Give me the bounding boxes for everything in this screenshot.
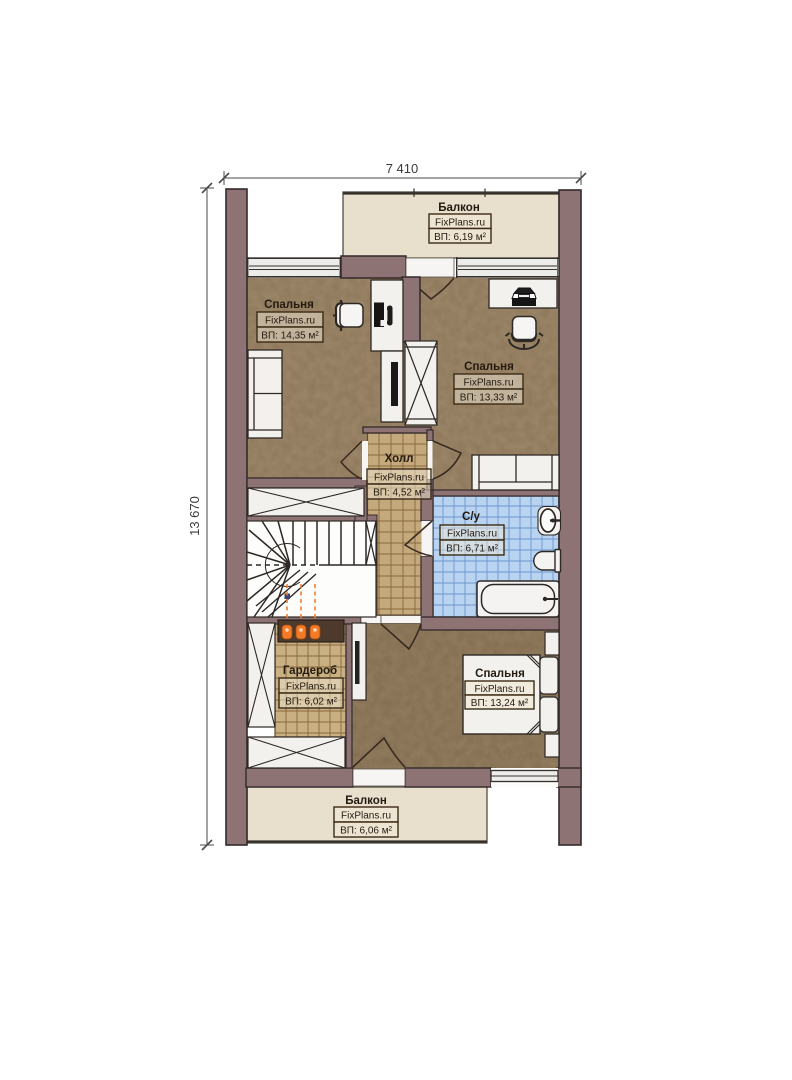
svg-text:ВП: 14,35 м²: ВП: 14,35 м² (261, 331, 319, 342)
svg-text:ВП: 6,19 м²: ВП: 6,19 м² (434, 232, 487, 243)
svg-text:Балкон: Балкон (438, 202, 480, 214)
svg-text:ВП: 13,24 м²: ВП: 13,24 м² (471, 698, 529, 709)
svg-text:FixPlans.ru: FixPlans.ru (447, 529, 497, 540)
svg-text:7 410: 7 410 (386, 161, 419, 176)
svg-text:С/у: С/у (462, 511, 481, 523)
svg-text:Гардероб: Гардероб (283, 665, 337, 677)
svg-text:FixPlans.ru: FixPlans.ru (286, 682, 336, 693)
svg-text:FixPlans.ru: FixPlans.ru (265, 316, 315, 327)
svg-text:ВП: 6,06 м²: ВП: 6,06 м² (340, 826, 393, 837)
svg-text:FixPlans.ru: FixPlans.ru (463, 378, 513, 389)
svg-text:FixPlans.ru: FixPlans.ru (374, 473, 424, 484)
svg-text:Спальня: Спальня (464, 361, 514, 373)
svg-text:FixPlans.ru: FixPlans.ru (341, 811, 391, 822)
svg-text:Балкон: Балкон (345, 795, 387, 807)
svg-text:ВП: 6,02 м²: ВП: 6,02 м² (285, 697, 338, 708)
svg-text:FixPlans.ru: FixPlans.ru (474, 684, 524, 695)
svg-text:FixPlans.ru: FixPlans.ru (435, 218, 485, 229)
svg-text:13 670: 13 670 (187, 496, 202, 536)
svg-text:ВП: 6,71 м²: ВП: 6,71 м² (446, 544, 499, 555)
svg-text:ВП: 13,33 м²: ВП: 13,33 м² (460, 393, 518, 404)
svg-text:ВП: 4,52 м²: ВП: 4,52 м² (373, 488, 426, 499)
svg-text:Спальня: Спальня (264, 299, 314, 311)
svg-text:Спальня: Спальня (475, 668, 525, 680)
svg-text:Холл: Холл (385, 453, 414, 465)
